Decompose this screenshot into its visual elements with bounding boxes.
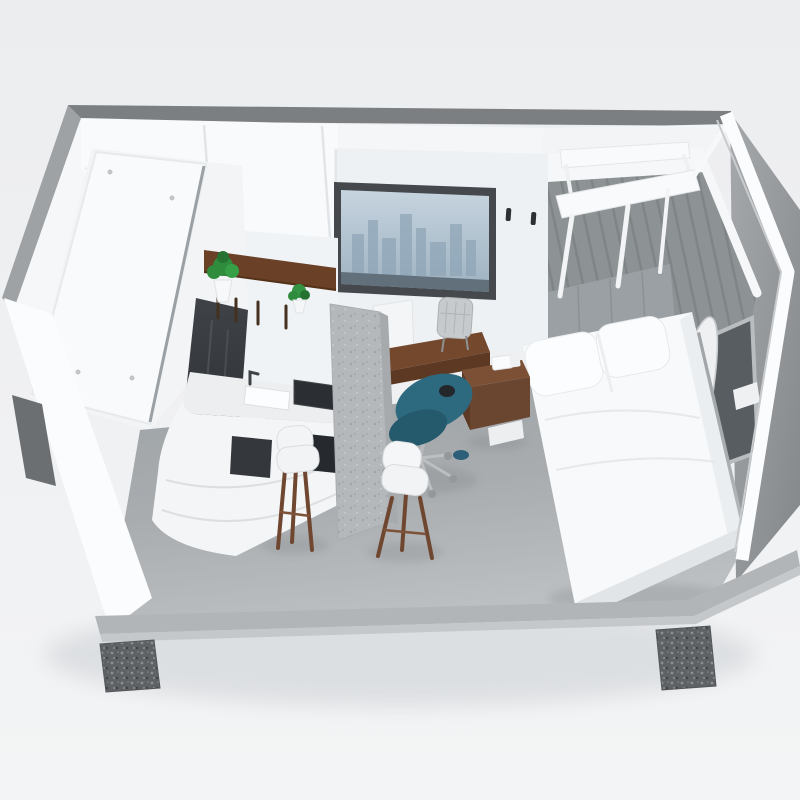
appliance-front — [230, 436, 272, 478]
concrete-foot-right — [656, 626, 716, 690]
floor-item — [453, 450, 469, 460]
stool-seat — [276, 444, 320, 474]
apartment-cutaway-render — [0, 0, 800, 800]
concrete-foot-left — [100, 640, 160, 692]
render-canvas — [0, 0, 800, 800]
window-city-view — [334, 182, 496, 300]
island-column — [330, 304, 398, 540]
chair-item — [439, 385, 455, 397]
